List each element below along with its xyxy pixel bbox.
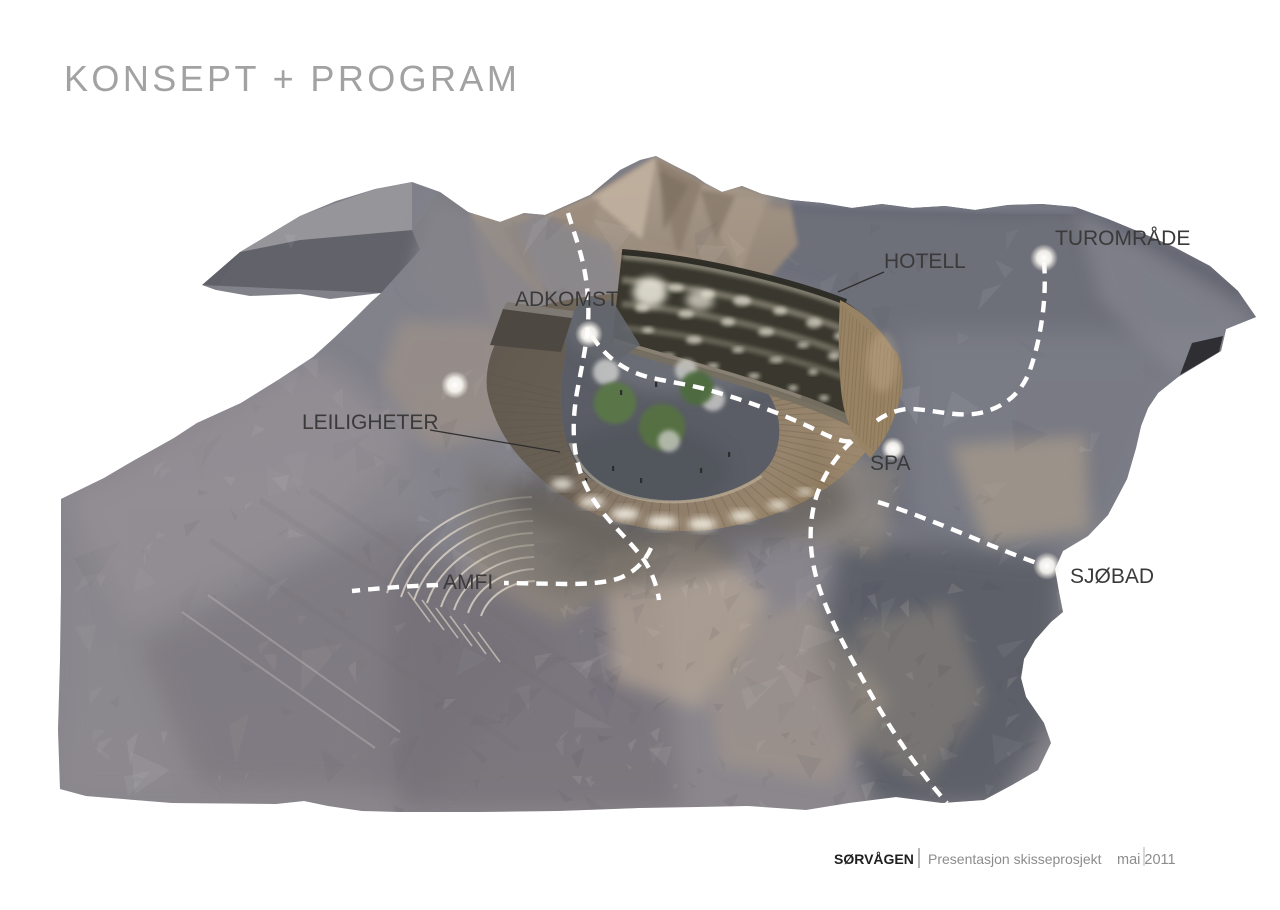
svg-text:mai 2011: mai 2011	[1117, 852, 1176, 868]
svg-text:KONSEPT + PROGRAM: KONSEPT + PROGRAM	[64, 58, 520, 99]
svg-text:TUROMRÅDE: TUROMRÅDE	[1055, 227, 1190, 250]
svg-text:AMFI: AMFI	[443, 571, 493, 594]
svg-text:LEILIGHETER: LEILIGHETER	[302, 411, 439, 434]
svg-text:ADKOMST: ADKOMST	[515, 288, 619, 311]
svg-text:SØRVÅGEN: SØRVÅGEN	[834, 851, 914, 867]
svg-text:SJØBAD: SJØBAD	[1070, 565, 1154, 588]
svg-text:Presentasjon skisseprosjekt: Presentasjon skisseprosjekt	[928, 851, 1102, 867]
svg-text:HOTELL: HOTELL	[884, 250, 966, 273]
svg-text:SPA: SPA	[870, 452, 910, 475]
